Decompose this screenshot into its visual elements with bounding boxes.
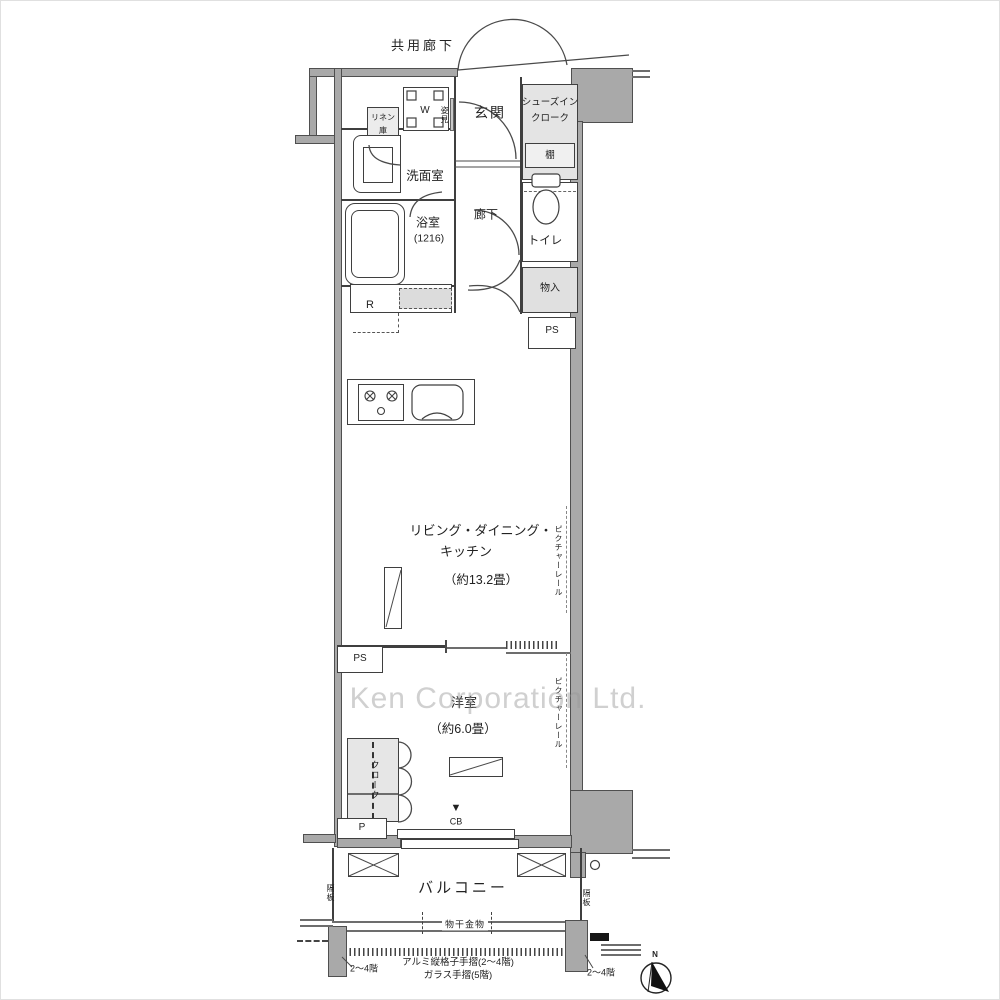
north-label: N <box>652 950 658 960</box>
laundry-mark-right <box>491 912 492 934</box>
shelf-label: 棚 <box>545 150 555 162</box>
left-edge-line1 <box>300 919 333 921</box>
laundry-fitting-label: 物干金物 <box>442 919 488 930</box>
left-wall <box>334 68 342 847</box>
wall-washroom-bottom <box>341 199 455 201</box>
partition-left-label: 隔板 <box>325 884 335 902</box>
partition-right-label: 隔板 <box>581 889 591 907</box>
ldk-label-1: リビング・ダイニング・ <box>409 523 552 539</box>
genkan-label: 玄関 <box>474 104 506 122</box>
pillar-left <box>328 926 347 977</box>
entrance-door-arc <box>458 19 567 70</box>
sliding-door-panel <box>446 647 506 649</box>
mirror-label: 姿見 <box>439 106 449 124</box>
left-wall-stub <box>295 135 336 144</box>
north-compass <box>641 962 671 993</box>
fridge-space-dash-v <box>398 313 399 333</box>
shoe-closet-label-2: クローク <box>531 113 569 125</box>
stove <box>358 384 404 421</box>
toilet-room <box>522 182 578 262</box>
balcony-label: バルコニー <box>418 880 508 899</box>
ac-unit-right <box>517 853 566 877</box>
picture-rail-label-ldk: ピクチャーレール <box>553 525 563 597</box>
bottom-right-mass <box>570 790 633 854</box>
handrail-hatch <box>345 948 577 956</box>
bedroom-size-label: （約6.0畳） <box>429 722 496 738</box>
top-right-wall-line2 <box>632 76 650 78</box>
sliding-door-lower <box>506 652 571 654</box>
washroom-label: 洗面室 <box>406 169 444 185</box>
left-edge-dashes <box>297 940 328 942</box>
top-right-wall-line <box>632 70 650 72</box>
common-corridor-label: 共用廊下 <box>391 38 455 54</box>
washer-label: W <box>420 105 429 118</box>
balcony-window2 <box>401 839 519 849</box>
vanity-inner <box>363 147 393 183</box>
bottom-wall-right <box>513 835 572 848</box>
fridge-space-dash-h <box>353 332 399 333</box>
floors-right-label: 2〜4階 <box>587 967 615 978</box>
ps-lower-label: PS <box>353 653 366 666</box>
toilet-label: トイレ <box>528 234 563 248</box>
cb-arrow: ▼ <box>451 802 462 816</box>
bathroom-size-label: (1216) <box>414 232 444 245</box>
right-mass-ext1 <box>632 849 670 851</box>
storage-label: 物入 <box>540 283 560 296</box>
toilet-dash-line <box>524 191 576 192</box>
right-black-bar <box>590 933 609 941</box>
right-mass-ext2 <box>632 857 670 859</box>
storage-door-arc1 <box>468 260 520 290</box>
hallway-label: 廊下 <box>474 208 498 223</box>
floor-plan: 共用廊下 玄関 姿見 シューズイン クローク 棚 W リネン 庫 洗面室 浴室 … <box>0 0 1000 1000</box>
bathroom-door-arc <box>410 192 442 217</box>
drain-ring <box>591 861 600 870</box>
plan-linework <box>1 1 1000 1000</box>
linen-label-2: 庫 <box>379 126 387 136</box>
top-left-corridor-wall <box>309 76 317 139</box>
ps-upper-label: PS <box>545 325 558 338</box>
wall-genkan-left <box>454 77 456 313</box>
ldk-size-label: （約13.2畳） <box>444 573 518 589</box>
handrail-note-2: ガラス手摺(5階) <box>424 970 492 982</box>
balcony-window <box>397 829 515 839</box>
closet-folding-doors <box>398 742 412 822</box>
right-edge-line3 <box>601 954 641 956</box>
balcony-partition-right-line <box>580 848 582 923</box>
cb-label: CB <box>450 816 463 827</box>
pipe-label: P <box>359 822 366 835</box>
floors-left-label: 2〜4階 <box>350 963 378 974</box>
shoe-closet-label-1: シューズイン <box>522 97 579 109</box>
picture-rail-line-ldk <box>566 506 567 613</box>
bottom-right-step <box>570 852 586 878</box>
closet-label: クローク <box>368 760 379 800</box>
bedroom-counter-symbol <box>449 757 503 777</box>
bathroom-label: 浴室 <box>416 216 440 231</box>
fridge-label: R <box>366 299 374 313</box>
storage-door-arc2 <box>469 286 520 312</box>
linen-label-1: リネン <box>371 113 395 123</box>
top-right-column <box>571 68 633 123</box>
handrail-note-1: アルミ縦格子手摺(2〜4階) <box>402 957 514 969</box>
mirror-strip <box>450 98 454 131</box>
right-edge-line2 <box>601 949 641 951</box>
laundry-mark-left <box>422 912 423 934</box>
sliding-door-pocket <box>506 641 560 649</box>
bottom-left-stub <box>303 834 336 843</box>
pillar-right <box>565 920 588 972</box>
left-edge-line2 <box>300 925 333 927</box>
kitchen-hanging-cabinet <box>399 288 452 309</box>
ldk-label-2: キッチン <box>440 544 492 560</box>
top-wall <box>309 68 458 77</box>
watermark: Ken Corporation Ltd. <box>350 682 647 716</box>
bathtub-inner <box>351 210 399 278</box>
ldk-counter-symbol <box>384 567 402 629</box>
right-edge-line1 <box>601 944 641 946</box>
ac-unit-left <box>348 853 399 877</box>
